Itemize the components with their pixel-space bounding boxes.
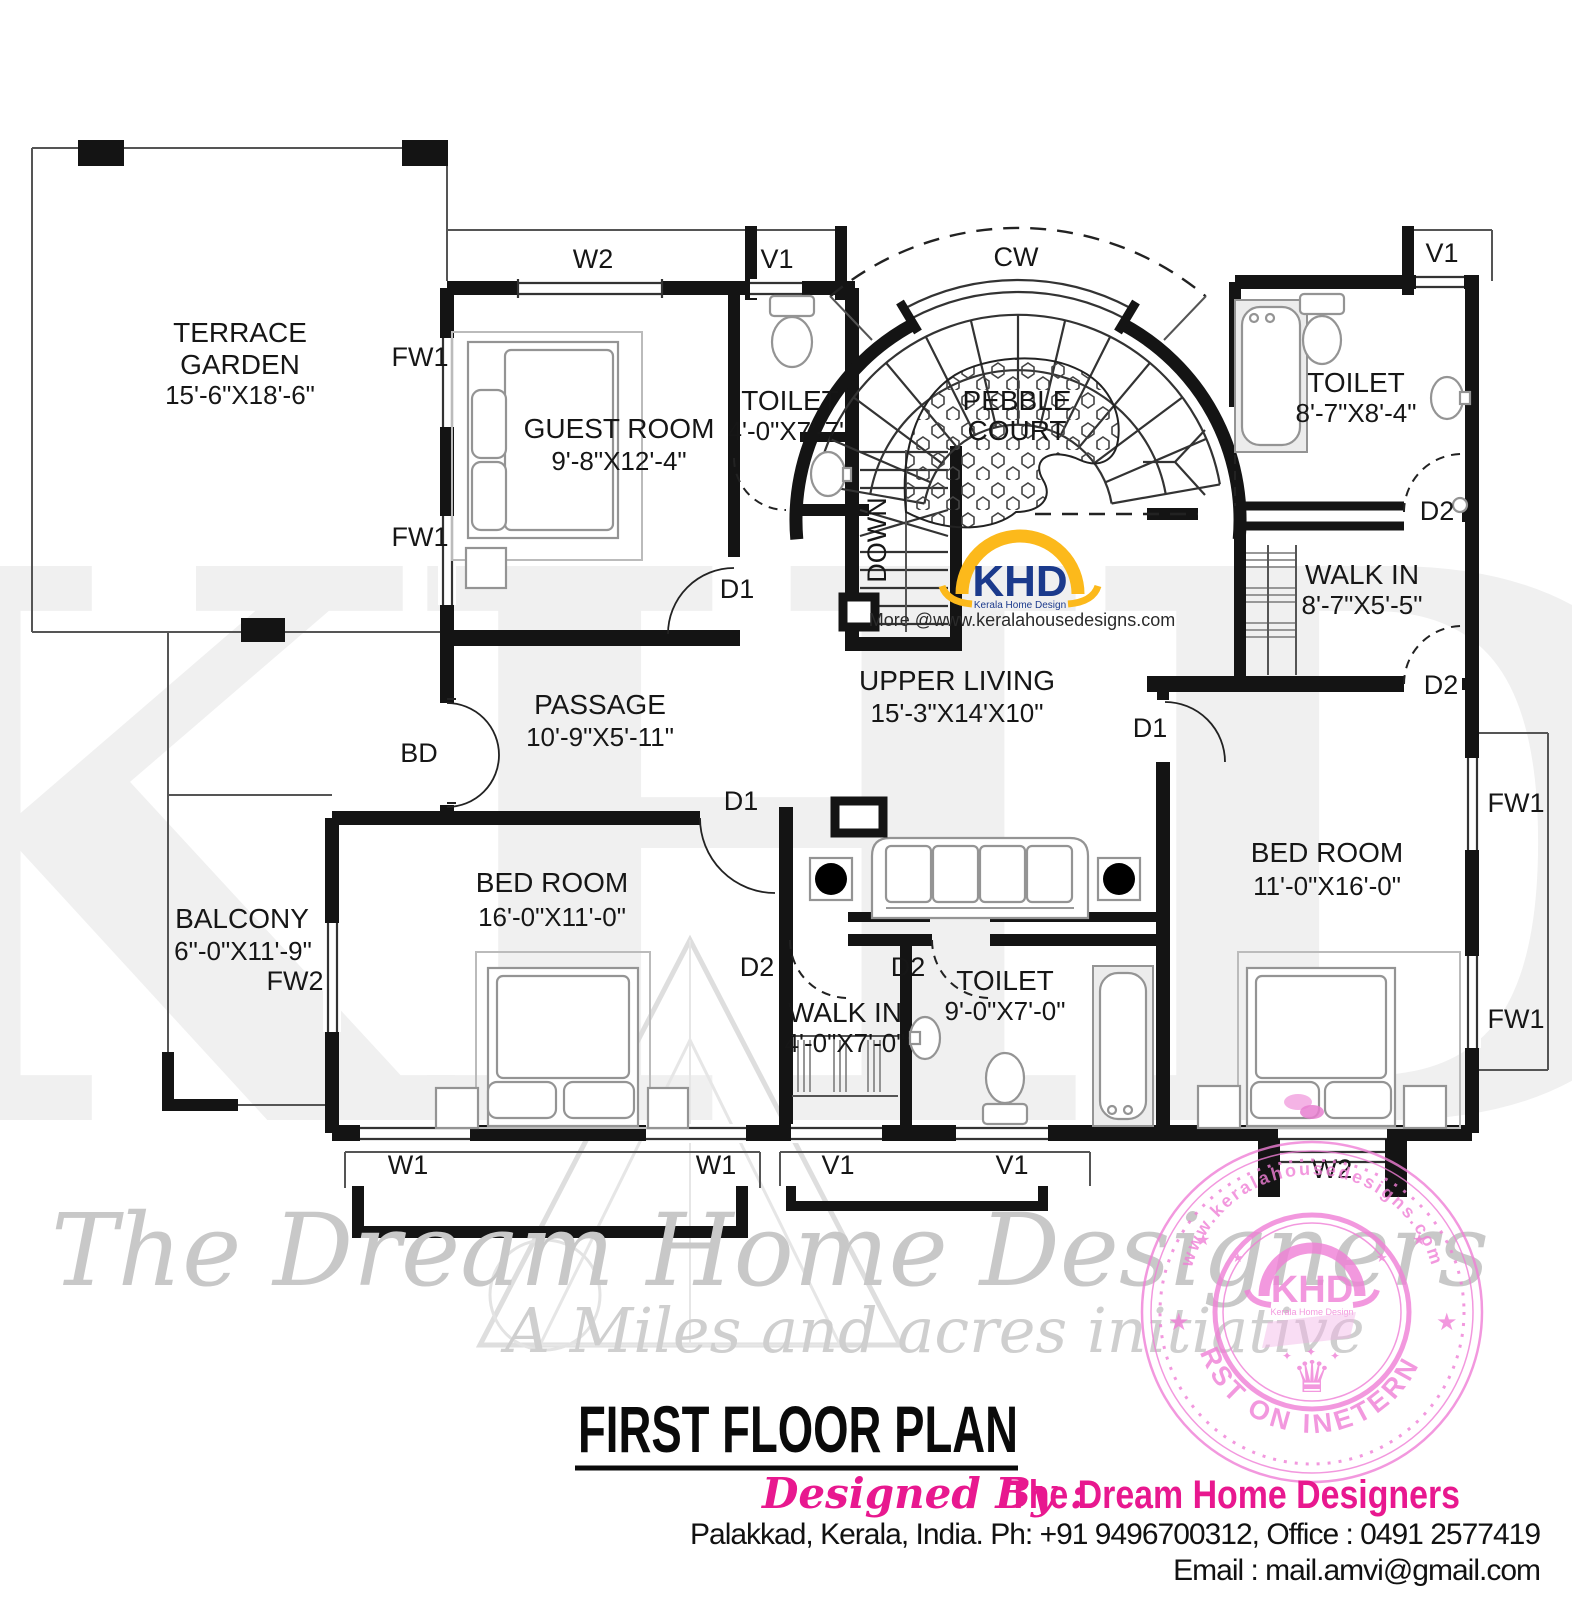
toilet-bottom-dim: 9'-0"X7'-0": [945, 996, 1066, 1026]
walkin-bottom-label: WALK IN: [788, 997, 902, 1028]
window-w2-top: [518, 279, 662, 298]
window-fw1-right-a: [1463, 758, 1481, 850]
toilet-right-label: TOILET: [1307, 367, 1405, 398]
title-block: FIRST FLOOR PLAN Designed By : The Dream…: [575, 1392, 1540, 1587]
bedroom-left-dim: 16'-0"X11'-0": [478, 902, 626, 932]
designer-name: The Dream Home Designers: [1008, 1473, 1460, 1517]
marker-fw1-right-a: FW1: [1488, 788, 1545, 818]
tv-unit: [835, 801, 883, 833]
terrace-label: TERRACE: [173, 317, 307, 348]
marker-d2-toiletbottom: D2: [891, 952, 926, 982]
window-fw2-balcony: [323, 923, 341, 1032]
contact-line: Palakkad, Kerala, India. Ph: +91 9496700…: [690, 1518, 1540, 1551]
marker-v1-top: V1: [760, 244, 793, 274]
marker-d1-bedright: D1: [1133, 713, 1168, 743]
marker-down: DOWN: [862, 497, 892, 582]
guest-room-label: GUEST ROOM: [524, 413, 715, 444]
marker-fw2: FW2: [267, 966, 324, 996]
walkin-right-dim: 8'-7"X5'-5": [1302, 590, 1423, 620]
window-fw1-right-b: [1463, 956, 1481, 1048]
marker-v1-bottom-a: V1: [821, 1150, 854, 1180]
marker-d2-walkinbottom: D2: [740, 952, 775, 982]
marker-fw1-guest-a: FW1: [392, 342, 449, 372]
svg-text:★: ★: [1376, 1251, 1388, 1266]
khd-logo-promo: More @www.keralahousedesigns.com: [869, 610, 1175, 630]
walkin-right-label: WALK IN: [1305, 559, 1419, 590]
marker-fw1-right-b: FW1: [1488, 1004, 1545, 1034]
pebble-court-label: PEBBLE: [963, 385, 1072, 416]
window-v1-bottom-b: [956, 1124, 1048, 1143]
page-title: FIRST FLOOR PLAN: [578, 1392, 1018, 1466]
svg-text:★: ★: [1412, 1230, 1426, 1249]
marker-fw1-guest-b: FW1: [392, 522, 449, 552]
terrace-dim: 15'-6"X18'-6": [165, 380, 315, 410]
marker-bd: BD: [400, 738, 438, 768]
toilet-top-label: TOILET: [741, 385, 839, 416]
marker-v1-topright: V1: [1425, 238, 1458, 268]
balcony-label: BALCONY: [175, 903, 309, 934]
marker-d2-walkinright: D2: [1424, 670, 1459, 700]
pebble-court-label2: COURT: [967, 415, 1066, 446]
stamp-khd-text: KHD: [1271, 1269, 1353, 1311]
passage-dim: 10'-9"X5'-11": [526, 722, 674, 752]
marker-v1-bottom-b: V1: [995, 1150, 1028, 1180]
svg-text:★: ★: [1232, 1251, 1244, 1266]
marker-d1-guest: D1: [720, 574, 755, 604]
marker-d1-bedleft: D1: [724, 786, 759, 816]
svg-text:★: ★: [1196, 1230, 1210, 1249]
marker-w1-b: W1: [696, 1150, 737, 1180]
walkin-bottom-dim: 4'-0"X7'-0": [785, 1028, 906, 1058]
stamp-crown-icon: ♛: [1292, 1352, 1331, 1403]
terrace-label2: GARDEN: [180, 349, 300, 380]
svg-text:✦: ✦: [1282, 1349, 1292, 1363]
sofa: [872, 838, 1088, 918]
floor-plan-page: KHD: [0, 0, 1572, 1600]
bedroom-right-label: BED ROOM: [1251, 837, 1403, 868]
balcony-dim: 6"-0"X11'-9": [174, 936, 312, 966]
marker-d2-toiletright: D2: [1420, 496, 1455, 526]
svg-text:★: ★: [1168, 1308, 1190, 1336]
guest-room-dim: 9'-8"X12'-4": [551, 446, 686, 476]
marker-w2-top: W2: [573, 244, 614, 274]
passage-label: PASSAGE: [534, 689, 666, 720]
email-line: Email : mail.amvi@gmail.com: [1173, 1554, 1540, 1587]
marker-cw: CW: [994, 242, 1039, 272]
window-v1-bottom-a: [791, 1124, 882, 1143]
svg-text:★: ★: [1436, 1308, 1458, 1336]
floor-plan-canvas: KHD: [0, 0, 1572, 1600]
upper-living-label: UPPER LIVING: [859, 665, 1055, 696]
upper-living-dim: 15'-3"X14'X10": [871, 698, 1044, 728]
toilet-top-dim: 4'-0"X7'-7": [728, 416, 849, 446]
window-v1-topright: [1416, 273, 1464, 291]
bedroom-left-label: BED ROOM: [476, 867, 628, 898]
bedroom-right-dim: 11'-0"X16'-0": [1253, 871, 1401, 901]
marker-w1-a: W1: [388, 1150, 429, 1180]
toilet-bottom-label: TOILET: [956, 965, 1054, 996]
toilet-right-dim: 8'-7"X8'-4": [1296, 398, 1417, 428]
khd-logo-text: KHD: [972, 557, 1067, 606]
